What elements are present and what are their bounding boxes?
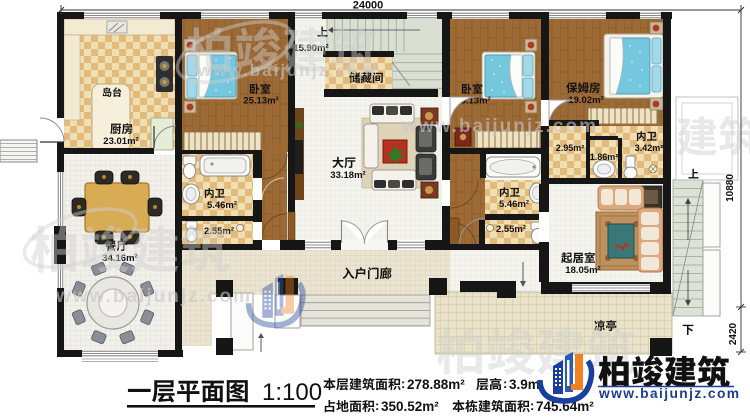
svg-text:19.02m²: 19.02m² [568, 95, 603, 106]
svg-text:350.52m²: 350.52m² [381, 399, 439, 414]
svg-text:1.86m²: 1.86m² [590, 152, 619, 162]
svg-text:2.95m²: 2.95m² [556, 143, 585, 153]
svg-text:www.baijunjz.com: www.baijunjz.com [598, 386, 740, 401]
svg-text::: : [530, 398, 534, 413]
svg-text:10880: 10880 [725, 174, 736, 202]
svg-text:1:100: 1:100 [262, 379, 322, 406]
svg-text:33.18m²: 33.18m² [330, 170, 365, 181]
svg-text:www.baijunjz.com: www.baijunjz.com [55, 286, 252, 307]
svg-text:5.46m²: 5.46m² [207, 200, 237, 211]
svg-text::: : [503, 376, 507, 391]
svg-text:23.01m²: 23.01m² [103, 136, 138, 147]
svg-text::: : [375, 398, 379, 413]
svg-text:3.9m: 3.9m [509, 377, 540, 392]
svg-text:2.55m²: 2.55m² [496, 224, 526, 235]
svg-text::: : [401, 376, 405, 391]
svg-text:5.46m²: 5.46m² [499, 199, 529, 210]
svg-text:www.baijunjz.com: www.baijunjz.com [401, 116, 598, 137]
svg-text:25.13m²: 25.13m² [243, 96, 278, 107]
svg-text:18.05m²: 18.05m² [565, 265, 600, 276]
svg-text:2420: 2420 [728, 322, 739, 345]
svg-text:24000: 24000 [353, 0, 384, 12]
svg-text:www.baijunjz.com: www.baijunjz.com [197, 61, 377, 80]
svg-text:3.42m²: 3.42m² [635, 143, 664, 153]
svg-text:278.88m²: 278.88m² [407, 377, 465, 392]
